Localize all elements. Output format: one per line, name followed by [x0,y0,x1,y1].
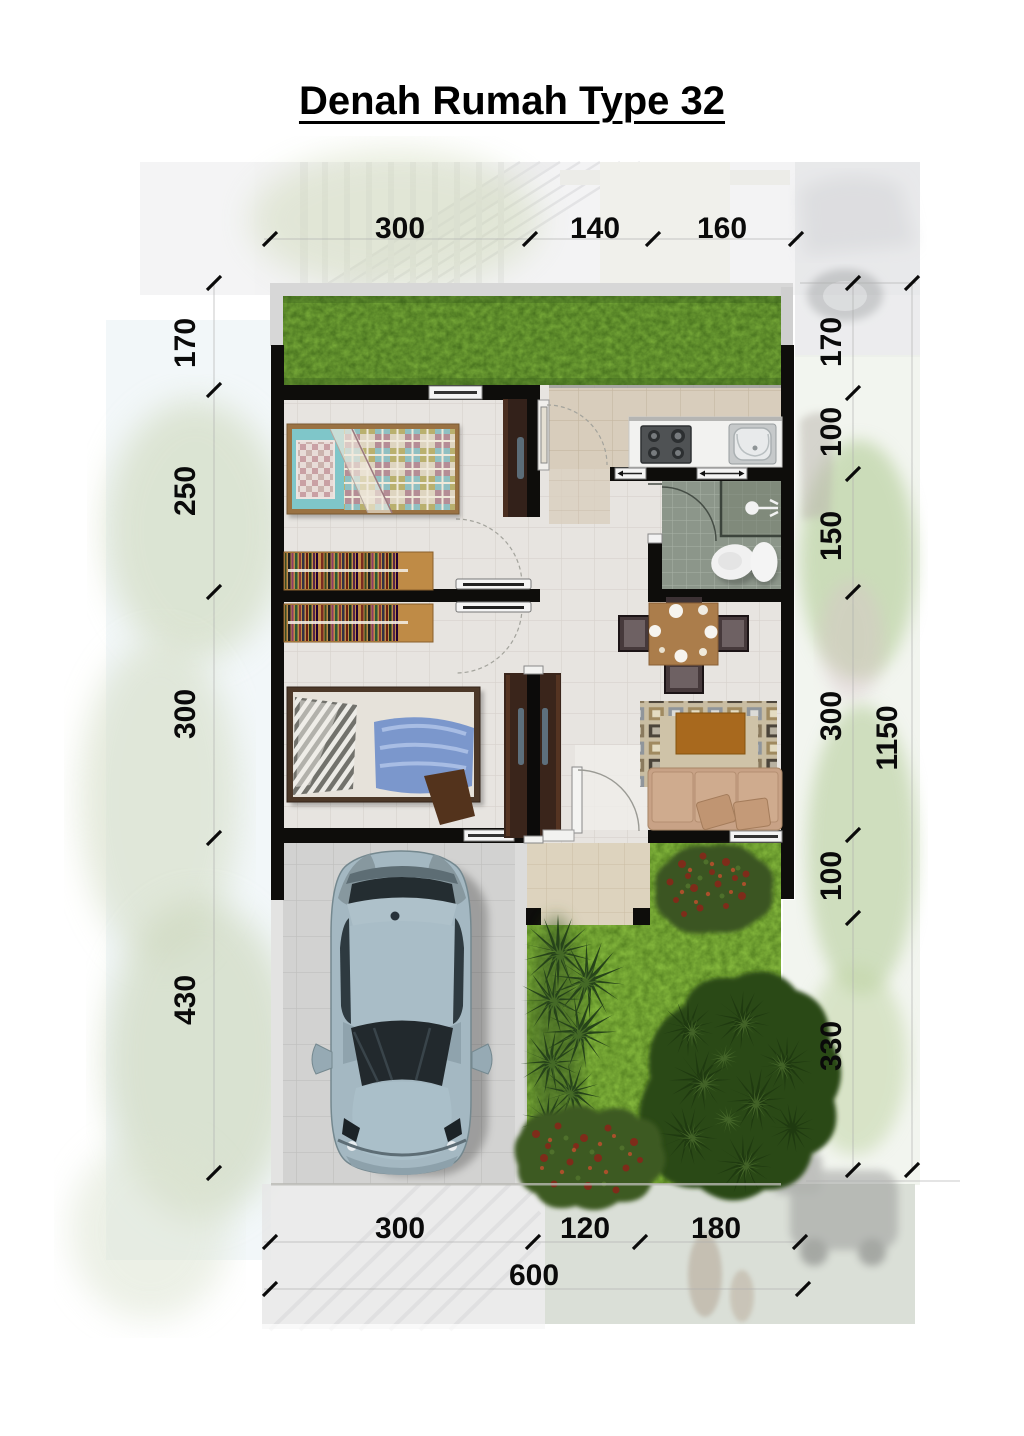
svg-text:1150: 1150 [871,705,904,770]
svg-text:300: 300 [375,1212,425,1245]
svg-text:170: 170 [169,318,202,368]
svg-text:150: 150 [815,511,848,561]
svg-text:600: 600 [509,1259,559,1292]
svg-text:140: 140 [570,212,620,245]
svg-text:170: 170 [815,317,848,367]
svg-text:100: 100 [815,851,848,901]
svg-text:330: 330 [815,1021,848,1071]
svg-text:160: 160 [697,212,747,245]
svg-text:300: 300 [375,212,425,245]
svg-text:300: 300 [169,689,202,739]
svg-text:250: 250 [169,466,202,516]
svg-text:120: 120 [560,1212,610,1245]
svg-text:300: 300 [815,691,848,741]
svg-text:180: 180 [691,1212,741,1245]
svg-text:100: 100 [815,407,848,457]
svg-text:430: 430 [169,975,202,1025]
